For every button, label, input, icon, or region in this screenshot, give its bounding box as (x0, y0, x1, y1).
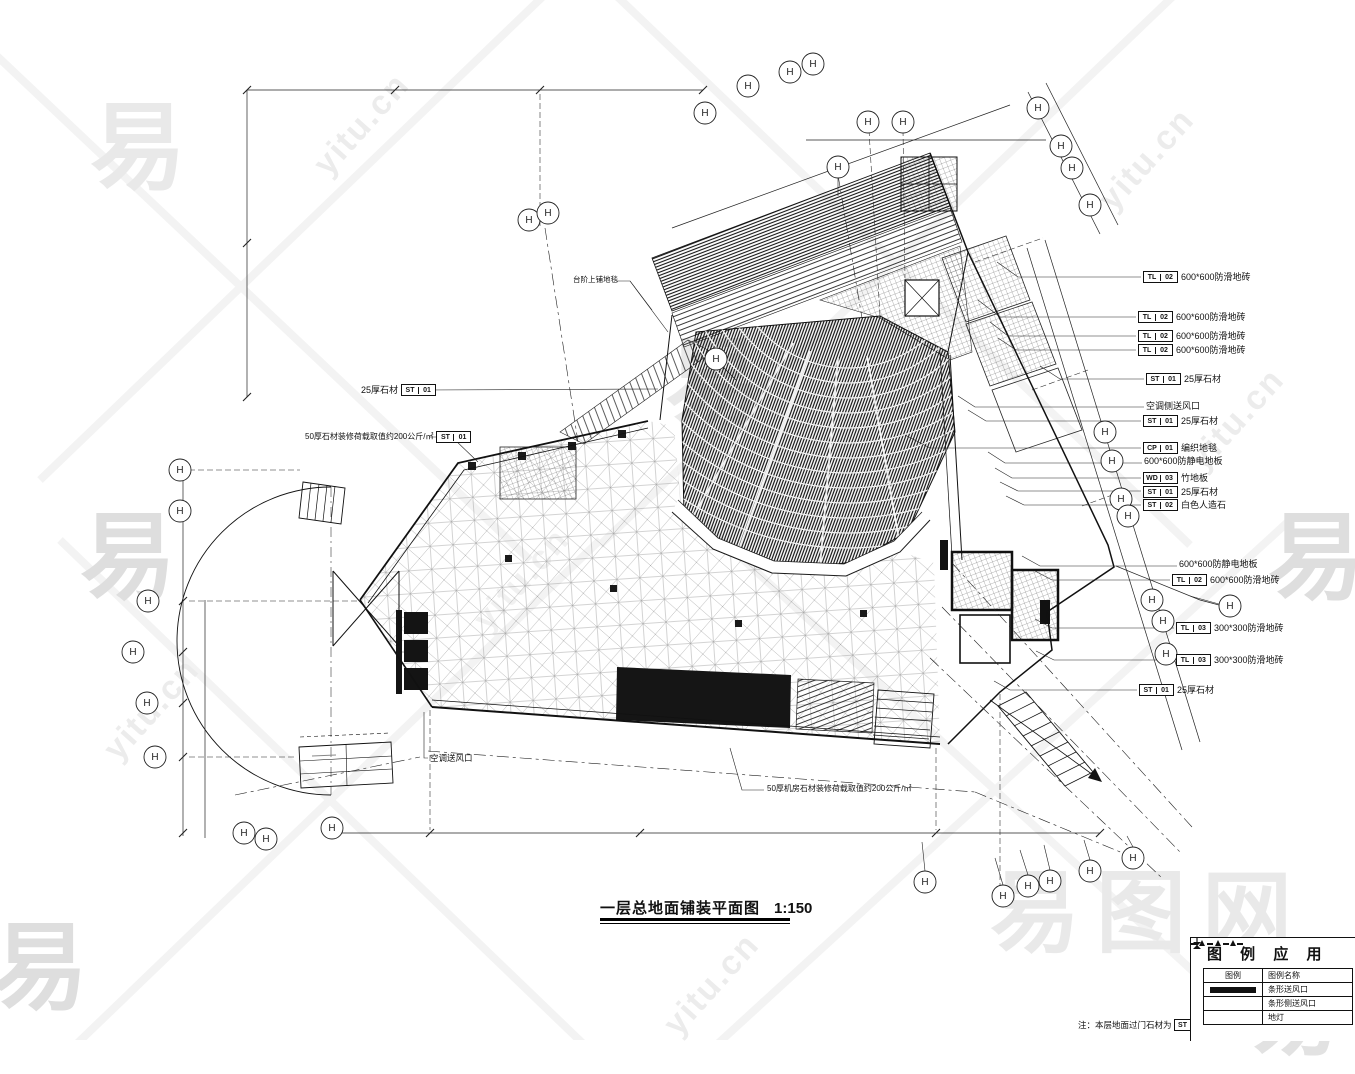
plan-annotation: 空调送风口 (430, 754, 473, 763)
svg-text:H: H (1068, 163, 1075, 174)
material-tag: CP01 (1143, 442, 1178, 454)
svg-text:H: H (1057, 141, 1064, 152)
callout-material: TL02600*600防滑地砖 (1138, 344, 1246, 356)
svg-text:H: H (525, 215, 532, 226)
title-underline (600, 923, 790, 924)
svg-text:H: H (1148, 595, 1155, 606)
callout-material: TL03300*300防滑地砖 (1176, 654, 1284, 666)
legend-row: 地灯 (1204, 1011, 1353, 1025)
svg-text:H: H (144, 596, 151, 607)
svg-text:H: H (1129, 853, 1136, 864)
svg-text:H: H (1086, 200, 1093, 211)
svg-text:H: H (1024, 881, 1031, 892)
svg-text:H: H (1101, 427, 1108, 438)
callout-material: 空调侧送风口 (1146, 402, 1200, 411)
material-tag: ST01 (1146, 373, 1181, 385)
svg-text:H: H (1086, 866, 1093, 877)
material-tag: WD03 (1143, 472, 1178, 484)
svg-text:H: H (1226, 601, 1233, 612)
svg-text:H: H (1034, 103, 1041, 114)
legend-row: 条形送风口 (1204, 983, 1353, 997)
callout-material: ST02白色人造石 (1143, 499, 1226, 511)
material-tag: ST01 (1139, 684, 1174, 696)
legend-header-symbol: 图例 (1204, 969, 1263, 983)
svg-text:H: H (1162, 649, 1169, 660)
svg-text:H: H (1117, 494, 1124, 505)
svg-text:H: H (921, 877, 928, 888)
material-tag: TL02 (1138, 311, 1173, 323)
legend-header-name: 图例名称 (1263, 969, 1353, 983)
svg-text:H: H (1159, 616, 1166, 627)
material-tag: ST01 (1143, 486, 1178, 498)
callout-material: CP01编织地毯 (1143, 442, 1217, 454)
dark-floor-block (616, 667, 791, 728)
material-tag: ST01 (1143, 415, 1178, 427)
material-tag: TL03 (1176, 622, 1211, 634)
svg-text:H: H (544, 208, 551, 219)
svg-text:H: H (151, 752, 158, 763)
callout-material: TL02600*600防滑地砖 (1138, 311, 1246, 323)
strip-supply-air-outlet-icon (1210, 987, 1256, 993)
material-tag: TL02 (1143, 271, 1178, 283)
callout-material: 600*600防静电地板 (1179, 560, 1258, 569)
svg-text:H: H (712, 354, 719, 365)
svg-text:H: H (262, 834, 269, 845)
callout-material: ST0125厚石材 (1139, 684, 1214, 696)
callout-material: 600*600防静电地板 (1144, 457, 1223, 466)
callout-material: WD03竹地板 (1143, 472, 1208, 484)
legend-row: 条形侧送风口 (1204, 997, 1353, 1011)
callout-material: TL02600*600防滑地砖 (1138, 330, 1246, 342)
floor-lamp-icon (1191, 938, 1203, 950)
callout-material: ST0125厚石材 (1143, 486, 1218, 498)
svg-text:H: H (899, 117, 906, 128)
plan-annotation: 50厚机房石材装修荷载取值约200公斤/㎡ (767, 785, 911, 793)
svg-text:H: H (864, 117, 871, 128)
floor-plan-drawing: HH HH HH HH H HH HH H HH HH HH HH HH HH … (0, 0, 1355, 1040)
svg-text:H: H (1046, 876, 1053, 887)
material-tag: ST01 (436, 431, 471, 443)
callout-material: ST0125厚石材 (1143, 415, 1218, 427)
callout-material: TL02600*600防滑地砖 (1172, 574, 1280, 586)
svg-text:H: H (701, 108, 708, 119)
svg-text:H: H (240, 828, 247, 839)
svg-text:H: H (328, 823, 335, 834)
material-tag: TL02 (1172, 574, 1207, 586)
callout-material: TL03300*300防滑地砖 (1176, 622, 1284, 634)
svg-text:H: H (1108, 456, 1115, 467)
svg-text:H: H (1124, 511, 1131, 522)
material-tag: TL02 (1138, 330, 1173, 342)
svg-text:H: H (786, 67, 793, 78)
drawing-scale: 1:150 (774, 900, 812, 917)
drawing-title-text: 一层总地面铺装平面图 (600, 900, 760, 917)
svg-text:H: H (809, 59, 816, 70)
callout-material: TL02600*600防滑地砖 (1143, 271, 1251, 283)
svg-text:H: H (176, 465, 183, 476)
svg-text:H: H (744, 81, 751, 92)
material-tag: TL02 (1138, 344, 1173, 356)
material-tag: TL03 (1176, 654, 1211, 666)
svg-text:H: H (143, 698, 150, 709)
callout-material: ST0125厚石材 (1146, 373, 1221, 385)
material-tag: ST01 (401, 384, 436, 396)
plan-annotation: 台阶上铺地毯 (573, 276, 618, 284)
callout-material: 50厚石材装修荷载取值约200公斤/㎡ST01 (305, 431, 471, 443)
legend-table: 图例 图例名称 条形送风口 条形侧送风口 (1203, 968, 1353, 1025)
svg-text:H: H (999, 891, 1006, 902)
title-underline (600, 918, 790, 921)
svg-text:H: H (176, 506, 183, 517)
drawing-title: 一层总地面铺装平面图1:150 (600, 897, 812, 918)
legend-panel: 图 例 应 用 图例 图例名称 条形送风口 条形侧送风口 (1190, 937, 1355, 1041)
callout-material: 25厚石材ST01 (361, 384, 436, 396)
material-tag: ST02 (1143, 499, 1178, 511)
svg-text:H: H (129, 647, 136, 658)
svg-text:H: H (834, 162, 841, 173)
